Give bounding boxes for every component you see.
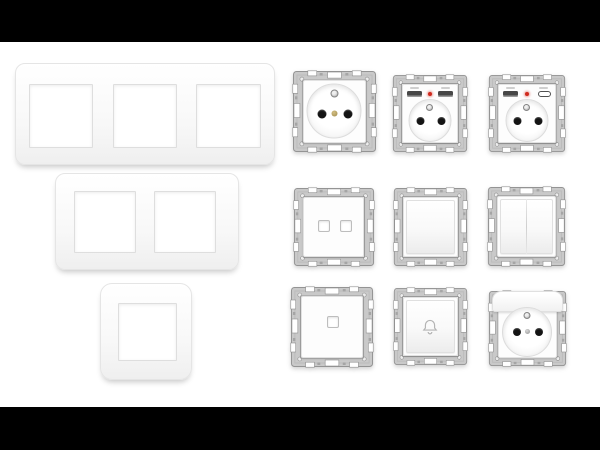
module-usb-double-socket	[392, 74, 468, 153]
usb-label-marking	[410, 87, 419, 89]
rocker-divider	[526, 199, 527, 254]
center-screw	[332, 111, 338, 117]
usb-a-port-right	[438, 91, 453, 97]
module-usb-a-c-socket	[488, 74, 566, 153]
socket-recess	[408, 99, 451, 142]
faceplate-window	[154, 191, 216, 253]
faceplate-window	[113, 84, 177, 148]
faceplate-window	[29, 84, 93, 148]
faceplate-double	[55, 173, 239, 270]
module-data-outlet-double	[293, 187, 375, 267]
letterbox-bottom	[0, 407, 600, 450]
socket-hole-left	[416, 117, 424, 125]
module-switch-single	[393, 187, 468, 267]
usb-label-marking	[441, 87, 450, 89]
outlet-face	[303, 197, 364, 257]
socket-recess	[307, 84, 362, 139]
socket-hole-right	[437, 117, 445, 125]
usb-label-marking	[539, 87, 548, 89]
faceplate-single	[100, 283, 192, 380]
socket-face	[303, 80, 366, 143]
socket-hole-right	[534, 117, 542, 125]
faceplate-window	[74, 191, 136, 253]
socket-hole-right	[535, 328, 543, 336]
socket-face	[402, 84, 459, 144]
module-french-socket	[292, 70, 377, 153]
module-switch-double	[487, 186, 566, 267]
center-screw	[525, 329, 530, 334]
module-data-outlet-single	[290, 286, 374, 368]
outlet-face	[301, 296, 363, 358]
rocker	[406, 200, 456, 254]
product-photo	[0, 0, 600, 450]
data-jack	[327, 316, 339, 328]
socket-hole-left	[513, 328, 521, 336]
earth-pin	[523, 104, 530, 111]
socket-face	[498, 84, 556, 144]
module-bell-push	[393, 287, 468, 366]
usb-a-port	[503, 91, 518, 97]
faceplate-triple	[15, 63, 275, 165]
socket-recess	[502, 307, 552, 357]
switch-face	[403, 197, 459, 257]
switch-face	[497, 196, 556, 257]
earth-pin	[330, 90, 338, 98]
faceplate-window	[118, 303, 177, 361]
socket-hole-left	[513, 117, 521, 125]
earth-pin	[524, 312, 531, 319]
letterbox-top	[0, 0, 600, 42]
bell-icon	[419, 316, 441, 338]
data-jack-left	[318, 220, 330, 232]
module-covered-socket	[488, 290, 567, 367]
socket-hole-left	[318, 110, 327, 119]
led-indicator	[428, 92, 432, 96]
socket-recess	[505, 99, 548, 142]
earth-pin	[426, 104, 433, 111]
led-indicator	[525, 92, 529, 96]
faceplate-window	[196, 84, 261, 148]
socket-hole-right	[344, 110, 353, 119]
data-jack-right	[340, 220, 352, 232]
usb-c-port	[538, 91, 551, 97]
socket-face	[498, 299, 557, 357]
usb-a-port-left	[407, 91, 422, 97]
switch-face	[403, 297, 459, 357]
usb-label-marking	[506, 87, 515, 89]
